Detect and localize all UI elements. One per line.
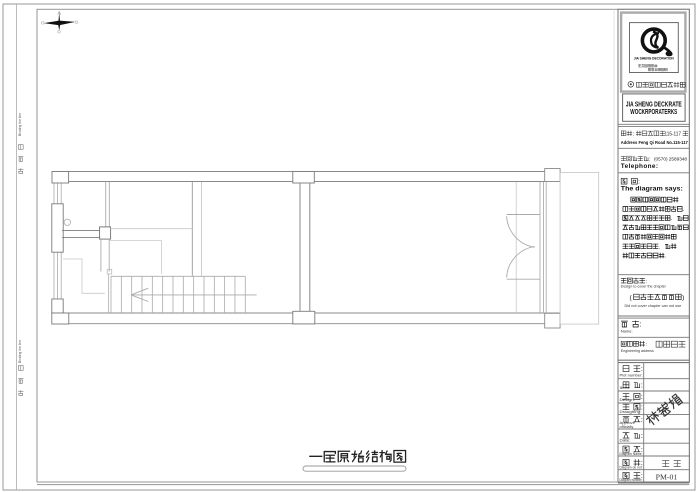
svg-text:Telephone:: Telephone: xyxy=(621,163,659,170)
svg-text::: : xyxy=(649,157,650,163)
svg-text:Design to cover the chapter: Design to cover the chapter xyxy=(621,284,667,288)
svg-text:Diagram Name:: Diagram Name: xyxy=(620,451,643,456)
svg-text:Name:: Name: xyxy=(621,329,633,334)
svg-text:JIA SHENG DECORATION: JIA SHENG DECORATION xyxy=(634,57,674,61)
svg-text:Date:: Date: xyxy=(620,438,631,443)
svg-text::: : xyxy=(640,320,642,329)
svg-text::: : xyxy=(641,382,643,389)
svg-text:Did not cover chapter can not: Did not cover chapter can not use xyxy=(625,304,682,308)
svg-text:PM-01: PM-01 xyxy=(656,472,678,481)
svg-text:(0570) 2589348: (0570) 2589348 xyxy=(654,156,687,161)
svg-text:WOCKRPORATERKS: WOCKRPORATERKS xyxy=(630,109,677,116)
svg-text:Address Feng Qi Road No.115-11: Address Feng Qi Road No.115-117 xyxy=(621,140,688,145)
svg-text::: : xyxy=(641,417,643,424)
svg-text:): ) xyxy=(682,294,684,301)
svg-text:Diagram do not:: Diagram do not: xyxy=(620,464,643,469)
svg-text::: : xyxy=(641,433,643,440)
svg-text:Draughing:: Draughing: xyxy=(620,409,642,414)
svg-text:Binding the line: Binding the line xyxy=(18,113,22,136)
svg-text::: : xyxy=(641,394,643,401)
svg-text:JIA SHENG DECKRATE: JIA SHENG DECKRATE xyxy=(626,102,682,109)
svg-text:The diagram says:: The diagram says: xyxy=(621,187,683,193)
svg-text:Plot number:: Plot number: xyxy=(620,372,643,377)
svg-text:Item:: Item: xyxy=(620,385,631,390)
svg-text:Diagram number:: Diagram number: xyxy=(620,477,643,482)
svg-text:Binding the line: Binding the line xyxy=(18,340,22,363)
svg-text::: : xyxy=(638,179,640,186)
svg-text:Engineering address: Engineering address xyxy=(621,349,654,353)
svg-text:115-117: 115-117 xyxy=(665,131,682,137)
svg-text:officially: officially xyxy=(620,424,634,429)
svg-text:Design:: Design: xyxy=(620,397,635,402)
